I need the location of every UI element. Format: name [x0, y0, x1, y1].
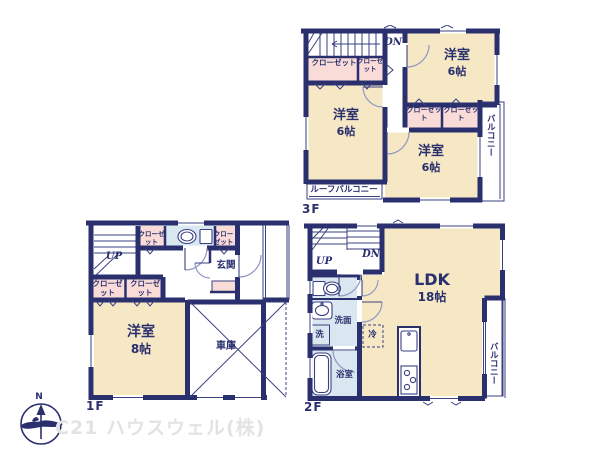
closet-label: クローゼット: [91, 279, 124, 297]
closet-label: クローゼット: [443, 106, 479, 123]
stairs-up-label-2f: UP: [313, 256, 335, 268]
closet-label: クローゼット: [138, 231, 165, 247]
stairs-down-label-3f: DN: [383, 37, 403, 49]
compass-n-label: N: [33, 392, 45, 403]
room-label-1f: 洋室 8帖: [110, 324, 172, 356]
laundry-label: 洗: [311, 330, 328, 340]
stairs-up-label-1f: UP: [103, 251, 125, 263]
floor-label-3f: 3F: [302, 202, 321, 216]
balcony-label-2f: バルコニー: [488, 327, 498, 399]
closet-label: クローゼット: [211, 231, 236, 247]
ldk-label: LDK 18帖: [400, 270, 464, 305]
room-label-3f-left: 洋室 6帖: [316, 108, 376, 138]
garage-label: 車庫: [205, 341, 247, 353]
toilet-icon: [313, 282, 341, 296]
fridge-label: 冷: [364, 330, 381, 340]
floor-label-2f: 2F: [304, 400, 323, 414]
kitchen-counter: [398, 327, 420, 398]
closet-label: クローゼット: [128, 279, 162, 297]
closet-label: クローゼット: [406, 106, 442, 123]
balcony-label-3f: バルコニー: [485, 103, 495, 167]
washroom-label: 洗面: [327, 316, 359, 326]
bathroom-label: 浴室: [328, 370, 361, 380]
stairs-down-label-2f: DN: [360, 249, 382, 261]
roof-balcony-label: ルーフバルコニー: [306, 185, 382, 195]
floor-label-1f: 1F: [86, 399, 105, 413]
room-label-3f-bottom-right: 洋室 6帖: [401, 144, 461, 174]
floorplan-1f: [85, 215, 297, 415]
room-label-3f-top-right: 洋室 6帖: [427, 48, 487, 78]
closet-label: クローゼット: [357, 58, 383, 74]
entrance-label: 玄関: [212, 260, 240, 271]
floorplan-page: DN クローゼット クローゼット 洋室 6帖 洋室 6帖 洋室 6帖 クローゼッ…: [0, 0, 600, 450]
closet-label: クローゼット: [311, 58, 357, 67]
company-watermark: C21 ハウスウェル(株): [55, 413, 265, 440]
